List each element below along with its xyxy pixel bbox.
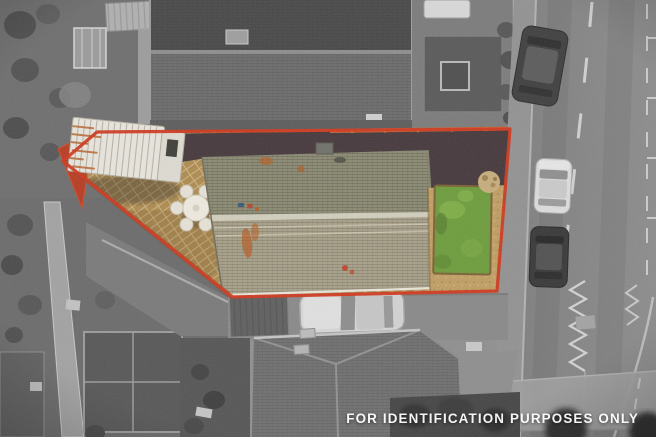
identification-watermark: FOR IDENTIFICATION PURPOSES ONLY	[346, 411, 639, 426]
aerial-photo-canvas	[0, 0, 656, 437]
photo-vignette	[0, 0, 656, 437]
aerial-photo: FOR IDENTIFICATION PURPOSES ONLY	[0, 0, 656, 437]
